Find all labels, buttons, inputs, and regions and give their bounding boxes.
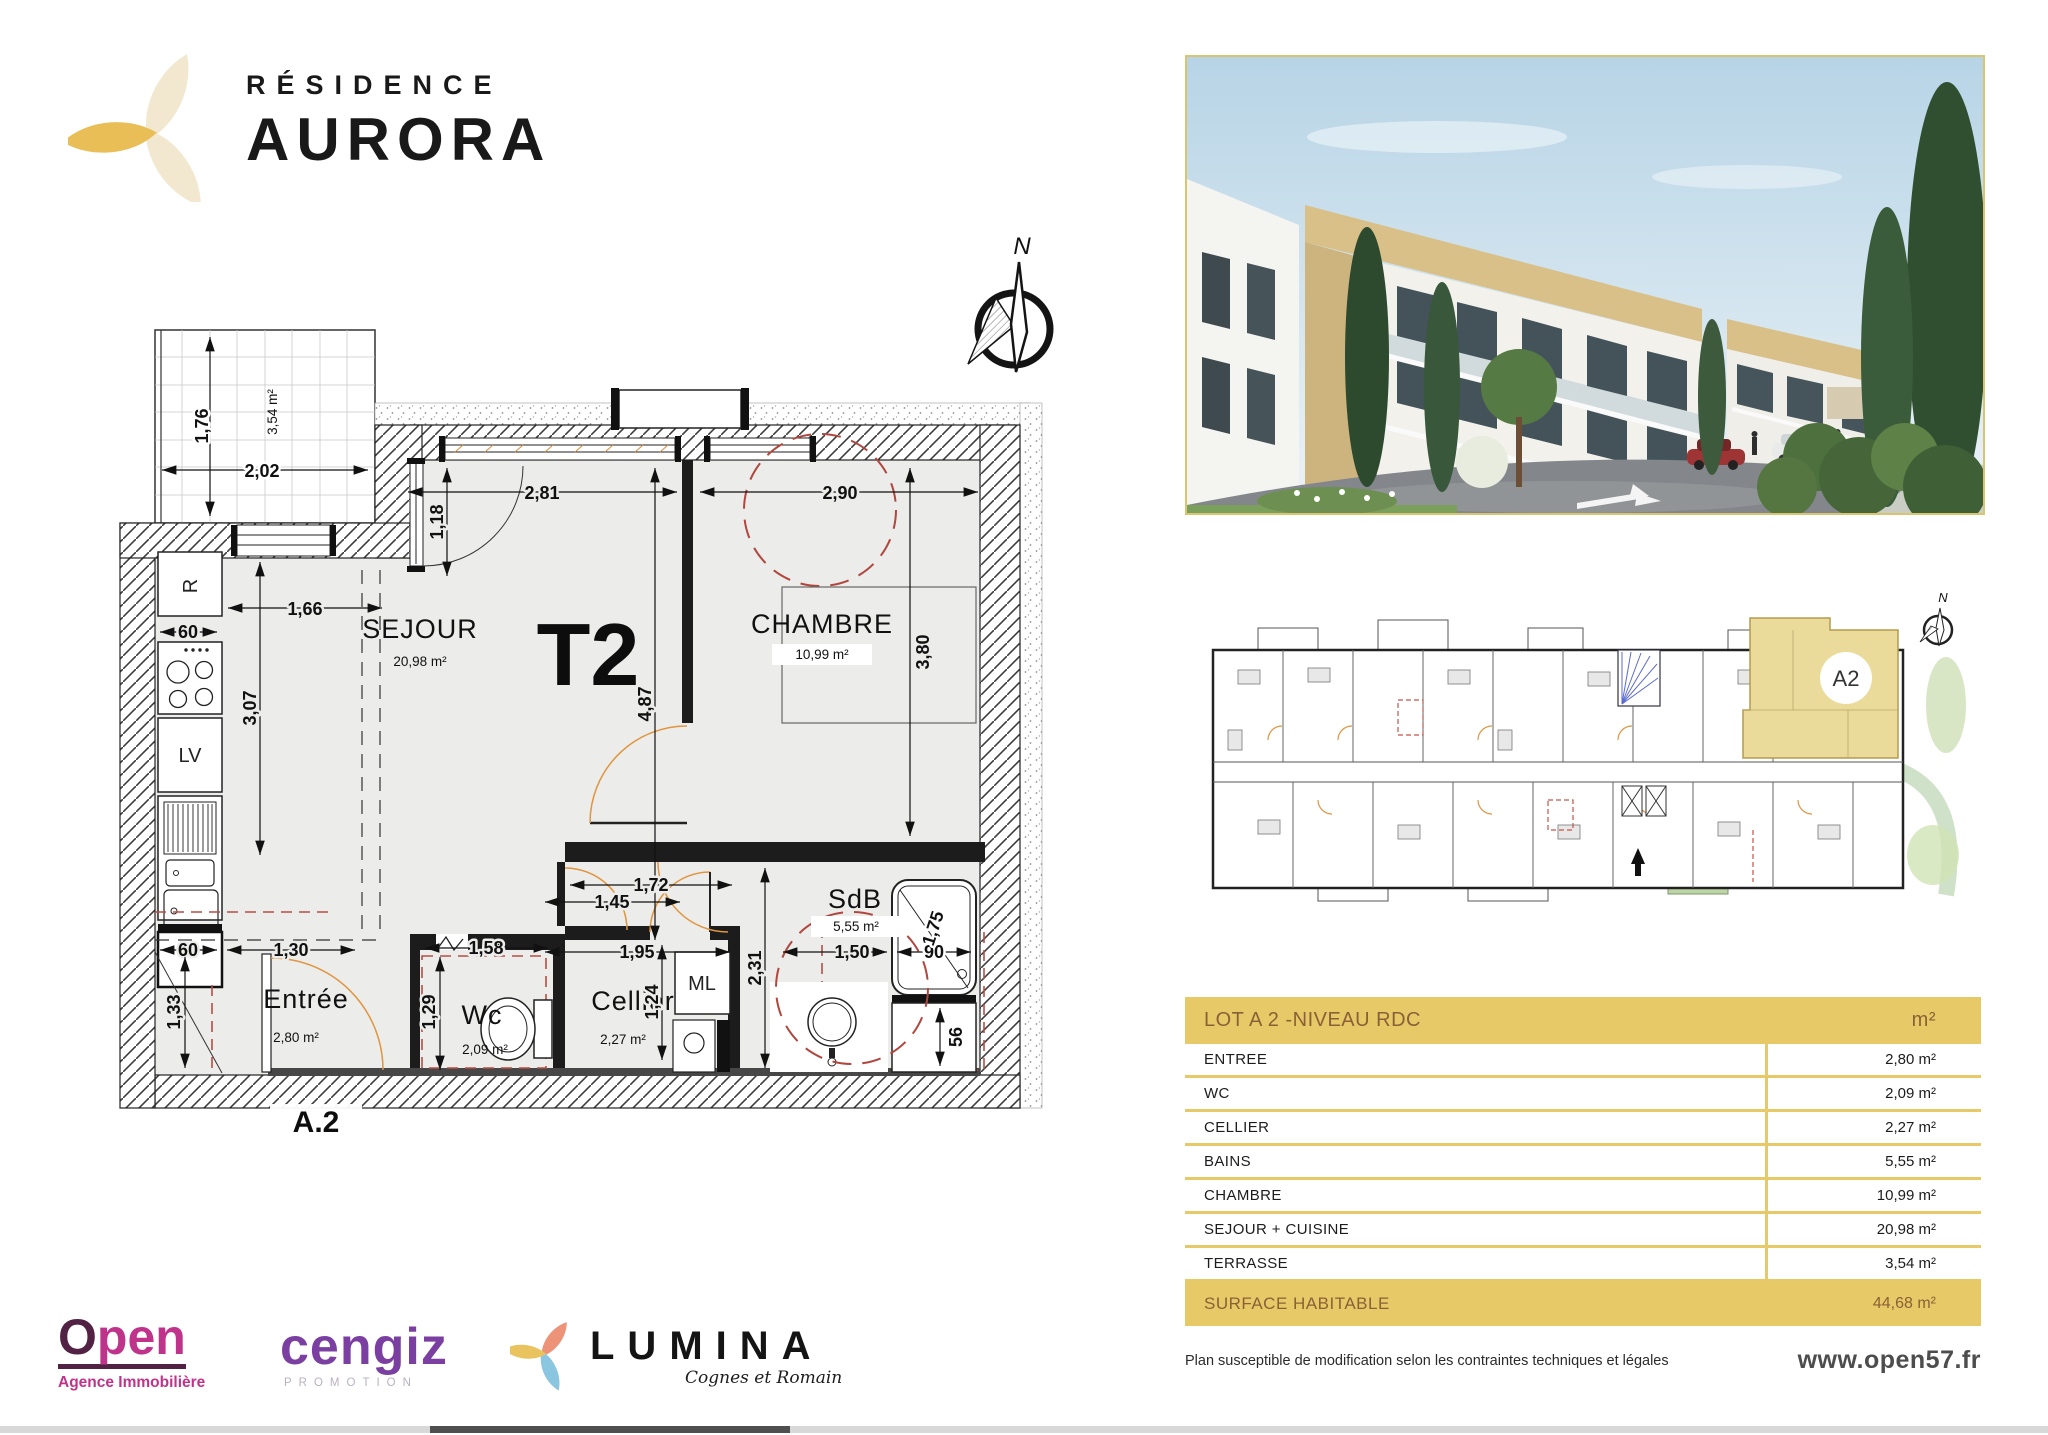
sejour-label: SEJOUR [362,614,478,644]
lumina-logo-name: LUMINA [590,1326,842,1366]
surface-habitable-row: SURFACE HABITABLE 44,68 m² [1185,1282,1981,1326]
svg-text:60: 60 [178,622,198,642]
svg-text:1,66: 1,66 [287,599,322,619]
disclaimer-text: Plan susceptible de modification selon l… [1185,1353,1669,1369]
svg-text:1,24: 1,24 [642,984,662,1019]
sdb-label: SdB [828,884,882,914]
table-row: ENTREE 2,80 m² [1185,1044,1981,1078]
siteplan-a2-unit: A2 [1743,618,1898,758]
svg-text:1,30: 1,30 [273,940,308,960]
kitchen-window [231,525,336,556]
unit-label: A.2 [293,1106,340,1139]
table-row: SEJOUR + CUISINE 20,98 m² [1185,1214,1981,1248]
svg-text:1,58: 1,58 [468,938,503,958]
svg-text:4,87: 4,87 [635,686,655,721]
lumina-logo: LUMINA Cognes et Romain [510,1312,842,1392]
wc-area: 2,09 m² [462,1042,508,1057]
horizontal-scrollbar [0,1426,2048,1433]
dishwasher-label: LV [179,745,203,767]
svg-text:1,29: 1,29 [419,994,439,1029]
scrollbar-thumb[interactable] [430,1426,790,1433]
washing-machine-label: ML [688,973,716,995]
siteplan-a2-badge: A2 [1833,666,1860,691]
building-render-photo [1185,55,1985,515]
brand-residence-name: AURORA [246,105,551,174]
row-value: 10,99 m² [1765,1180,1981,1211]
brand-residence-label: RÉSIDENCE [246,70,551,101]
areas-table-header: LOT A 2 -NIVEAU RDC m² [1185,997,1981,1044]
areas-table-unit: m² [1912,1009,1936,1032]
table-row: BAINS 5,55 m² [1185,1146,1981,1180]
lumina-logo-tagline: Cognes et Romain [685,1368,842,1388]
svg-text:2,02: 2,02 [244,461,279,481]
row-label: CELLIER [1185,1112,1765,1143]
aurora-pinwheel-icon [68,42,228,202]
row-value: 5,55 m² [1765,1146,1981,1177]
row-label: CHAMBRE [1185,1180,1765,1211]
areas-table: LOT A 2 -NIVEAU RDC m² ENTREE 2,80 m² WC… [1185,997,1981,1326]
cellier-area: 2,27 m² [600,1032,646,1047]
wc-label: Wc [462,1000,503,1030]
svg-text:2,90: 2,90 [822,483,857,503]
svg-text:2,31: 2,31 [745,950,765,985]
row-value: 3,54 m² [1765,1248,1981,1279]
row-label: WC [1185,1078,1765,1109]
unit-type-label: T2 [537,605,640,704]
table-row: TERRASSE 3,54 m² [1185,1248,1981,1282]
open-logo-rest: pen [97,1309,186,1365]
svg-text:60: 60 [178,940,198,960]
sdb-area: 5,55 m² [833,919,879,934]
chambre-window [704,436,816,462]
siteplan-north-label: N [1938,590,1948,605]
open-logo: Open Agence Immobilière [58,1312,238,1392]
window-bay [611,388,749,430]
table-row: CELLIER 2,27 m² [1185,1112,1981,1146]
svg-text:56: 56 [946,1027,966,1047]
row-label: TERRASSE [1185,1248,1765,1279]
svg-text:1,45: 1,45 [594,892,629,912]
open-logo-initial: O [58,1309,97,1365]
chambre-label: CHAMBRE [751,609,893,639]
svg-text:1,72: 1,72 [633,875,668,895]
entree-area: 2,80 m² [273,1030,319,1045]
footnote: Plan susceptible de modification selon l… [1185,1346,1981,1375]
row-label: ENTREE [1185,1044,1765,1075]
table-row: CHAMBRE 10,99 m² [1185,1180,1981,1214]
lumina-pinwheel-icon [510,1312,576,1392]
sejour-area: 20,98 m² [393,654,447,669]
cengiz-logo-name: cengiz [280,1324,470,1371]
siteplan-compass: N [1920,590,1952,646]
row-label: SEJOUR + CUISINE [1185,1214,1765,1245]
entrance-door-label: A.2 [270,1104,362,1140]
svg-text:1,18: 1,18 [427,504,447,539]
surface-habitable-label: SURFACE HABITABLE [1185,1294,1765,1314]
site-plan: A2 N [1198,590,1986,905]
chambre-area: 10,99 m² [795,647,849,662]
svg-text:1,95: 1,95 [619,942,654,962]
svg-text:1,33: 1,33 [164,994,184,1029]
washing-machine: ML [673,952,730,1072]
surface-habitable-value: 44,68 m² [1765,1295,1981,1313]
svg-text:3,80: 3,80 [913,634,933,669]
entree-label: Entrée [263,984,349,1014]
fridge-label: R [180,579,202,593]
floor-plan-drawing: R LV [110,240,1050,1140]
brand-header: RÉSIDENCE AURORA [68,42,551,202]
row-value: 2,80 m² [1765,1044,1981,1075]
row-value: 2,27 m² [1765,1112,1981,1143]
partner-logos: Open Agence Immobilière cengiz PROMOTION… [58,1312,842,1392]
row-label: BAINS [1185,1146,1765,1177]
areas-table-title: LOT A 2 -NIVEAU RDC [1204,1009,1421,1032]
cengiz-logo: cengiz PROMOTION [280,1324,470,1389]
brochure-page: RÉSIDENCE AURORA N [0,0,2048,1435]
svg-text:1,76: 1,76 [192,408,212,443]
sejour-window [439,436,681,462]
terrace-area: 3,54 m² [265,389,280,435]
website-link[interactable]: www.open57.fr [1798,1346,1981,1375]
svg-text:1,50: 1,50 [834,942,869,962]
render-scene [1187,57,1983,513]
row-value: 20,98 m² [1765,1214,1981,1245]
open-logo-tagline: Agence Immobilière [58,1374,238,1392]
svg-text:3,07: 3,07 [240,690,260,725]
stove [158,642,222,714]
table-row: WC 2,09 m² [1185,1078,1981,1112]
cengiz-logo-tagline: PROMOTION [284,1377,470,1389]
row-value: 2,09 m² [1765,1078,1981,1109]
floor-plan: R LV [110,240,1050,1140]
svg-text:2,81: 2,81 [524,483,559,503]
